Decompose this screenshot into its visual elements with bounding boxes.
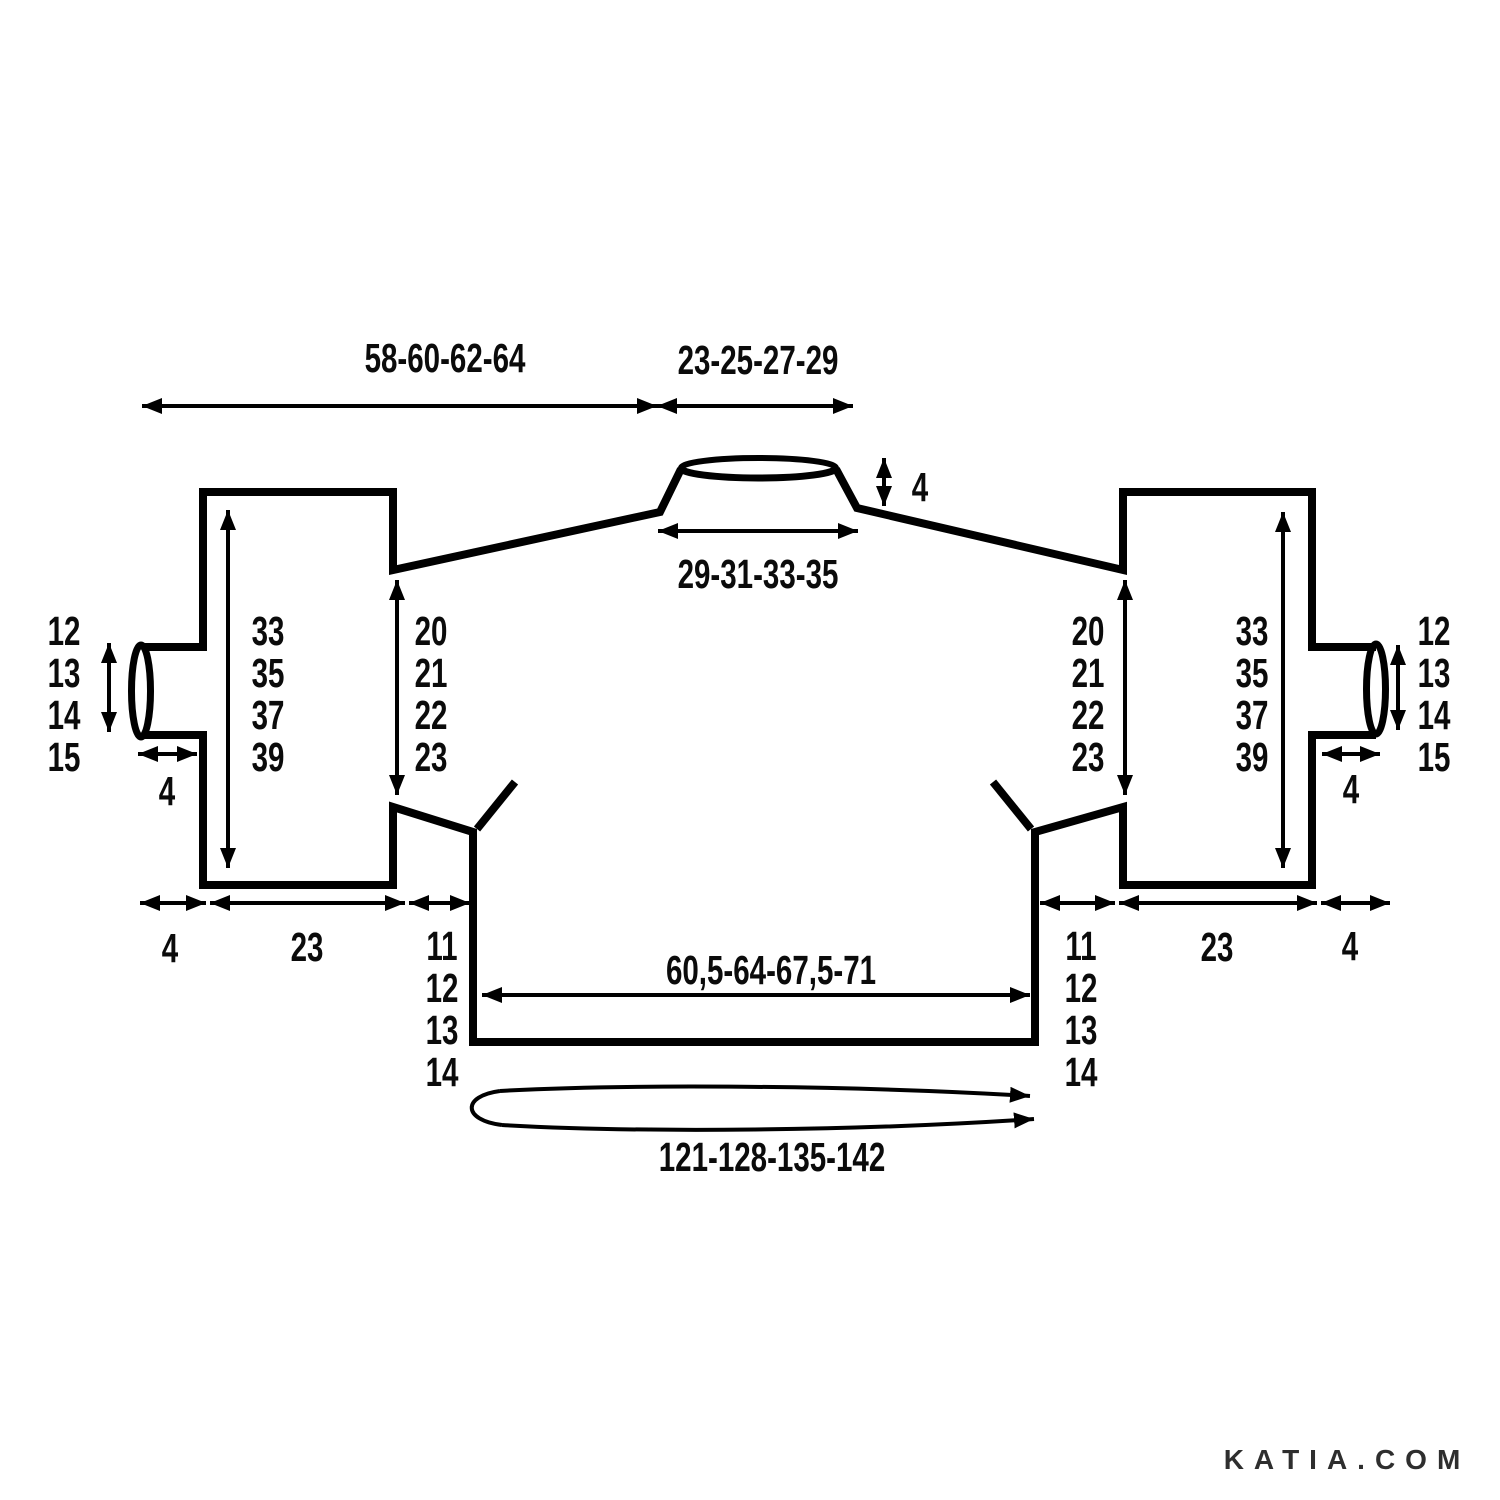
left-cuff-end-ellipse (132, 645, 151, 737)
label-right-sleeve-length: 33 35 37 39 (1236, 610, 1269, 778)
left-sleeve-and-shoulder-outline (142, 469, 681, 647)
label-left-sleeve-width-bottom: 23 (291, 926, 324, 968)
right-underarm-slash (993, 782, 1031, 829)
label-left-side-length: 11 12 13 14 (426, 925, 459, 1093)
label-top-width-right: 23-25-27-29 (678, 339, 839, 381)
arrow-circumference-loop-top (500, 1087, 1030, 1096)
neckband-bottom-arc (681, 468, 836, 478)
label-neck-width: 29-31-33-35 (678, 553, 839, 595)
left-underarm-slash (477, 782, 515, 829)
label-body-width: 60,5-64-67,5-71 (666, 949, 876, 991)
label-right-cuff-band-width: 4 (1343, 768, 1359, 810)
label-body-circumference: 121-128-135-142 (659, 1136, 886, 1178)
label-left-sleeve-length: 33 35 37 39 (252, 610, 285, 778)
label-left-cuff-band-width: 4 (159, 770, 175, 812)
schematic-drawing (0, 0, 1500, 1500)
watermark-katia-com: KATIA.COM (1224, 1444, 1471, 1476)
label-top-width-left: 58-60-62-64 (365, 337, 526, 379)
label-left-cuff-opening: 12 13 14 15 (48, 610, 81, 778)
label-right-side-length: 11 12 13 14 (1065, 925, 1098, 1093)
pattern-schematic-page: 58-60-62-64 23-25-27-29 4 29-31-33-35 12… (0, 0, 1500, 1500)
label-right-cuff-opening: 12 13 14 15 (1418, 610, 1451, 778)
arrow-circumference-loop-bottom (502, 1119, 1034, 1130)
label-collar-height: 4 (912, 466, 928, 508)
label-right-cuff-width-bottom: 4 (1342, 925, 1358, 967)
right-cuff-end-ellipse (1367, 644, 1386, 734)
arrow-circumference-loop-cap (472, 1091, 502, 1125)
label-left-cuff-width-bottom: 4 (162, 927, 178, 969)
label-right-sleeve-width-bottom: 23 (1201, 926, 1234, 968)
dimension-arrows (109, 406, 1398, 1130)
label-right-armhole-depth: 20 21 22 23 (1072, 610, 1105, 778)
label-left-armhole-depth: 20 21 22 23 (415, 610, 448, 778)
